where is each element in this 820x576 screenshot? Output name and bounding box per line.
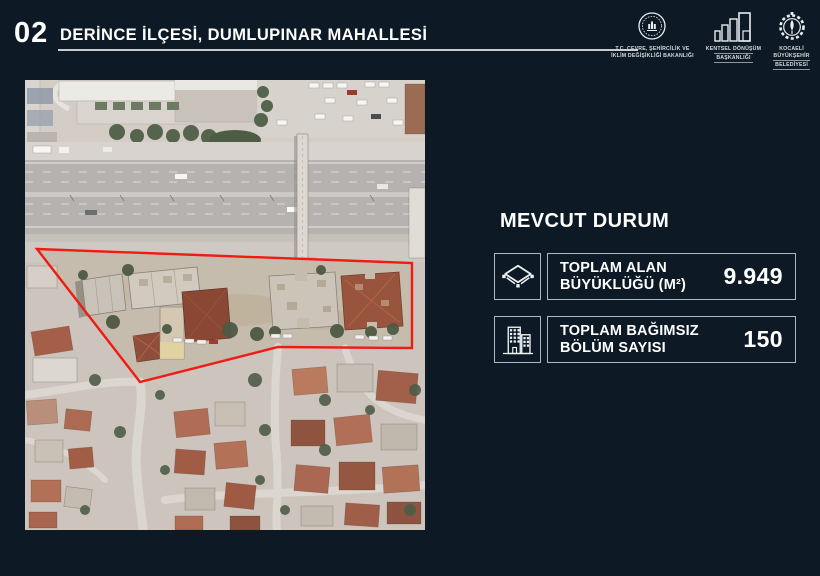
urban-transformation-buildings-icon xyxy=(713,11,753,43)
urban-transformation-caption-line: KENTSEL DÖNÜŞÜM xyxy=(706,46,761,53)
ministry-logo: T.C. ÇEVRE, ŞEHİRCİLİK VE İKLİM DEĞİŞİKL… xyxy=(611,11,694,60)
panel-heading: MEVCUT DURUM xyxy=(500,210,669,233)
urban-transformation-caption-line: BAŞKANLIĞI xyxy=(714,53,752,63)
buildings-icon xyxy=(500,322,536,358)
stat-label-line: BÖLÜM SAYISI xyxy=(560,340,699,357)
stat-textbox: TOPLAM BAĞIMSIZ BÖLÜM SAYISI 150 xyxy=(547,316,796,363)
stat-label-line: BÜYÜKLÜĞÜ (M²) xyxy=(560,277,686,294)
page-title: DERİNCE İLÇESİ, DUMLUPINAR MAHALLESİ xyxy=(60,26,427,45)
stat-label: TOPLAM ALAN BÜYÜKLÜĞÜ (M²) xyxy=(560,260,686,293)
stat-value: 9.949 xyxy=(723,263,783,290)
slide-number: 02 xyxy=(14,17,48,50)
municipality-caption-line: KOCAELİ xyxy=(773,46,810,53)
stat-value: 150 xyxy=(743,326,783,353)
stat-label-line: TOPLAM BAĞIMSIZ xyxy=(560,323,699,340)
ministry-seal-icon xyxy=(636,11,668,43)
ministry-caption-line: İKLİM DEĞİŞİKLİĞİ BAKANLIĞI xyxy=(611,53,694,60)
slide: 02 DERİNCE İLÇESİ, DUMLUPINAR MAHALLESİ … xyxy=(0,0,820,576)
area-icon xyxy=(500,259,536,295)
stat-label: TOPLAM BAĞIMSIZ BÖLÜM SAYISI xyxy=(560,323,699,356)
buildings-iconbox xyxy=(494,316,541,363)
municipality-caption-line: BELEDİYESİ xyxy=(773,60,810,70)
stat-cards: TOPLAM ALAN BÜYÜKLÜĞÜ (M²) 9.949 xyxy=(494,253,796,363)
stat-card-total-units: TOPLAM BAĞIMSIZ BÖLÜM SAYISI 150 xyxy=(494,316,796,363)
municipality-gear-icon xyxy=(776,11,808,43)
stat-label-line: TOPLAM ALAN xyxy=(560,260,686,277)
title-underline xyxy=(58,49,638,51)
urban-transformation-logo: KENTSEL DÖNÜŞÜM BAŞKANLIĞI xyxy=(706,11,761,63)
area-iconbox xyxy=(494,253,541,300)
municipality-caption-line: BÜYÜKŞEHİR xyxy=(773,53,810,60)
stat-textbox: TOPLAM ALAN BÜYÜKLÜĞÜ (M²) 9.949 xyxy=(547,253,796,300)
stat-card-total-area: TOPLAM ALAN BÜYÜKLÜĞÜ (M²) 9.949 xyxy=(494,253,796,300)
municipality-logo: KOCAELİ BÜYÜKŞEHİR BELEDİYESİ xyxy=(773,11,810,70)
aerial-map-graphic xyxy=(25,80,425,530)
ministry-caption-line: T.C. ÇEVRE, ŞEHİRCİLİK VE xyxy=(611,46,694,53)
aerial-map-image xyxy=(25,80,425,530)
header-logos: T.C. ÇEVRE, ŞEHİRCİLİK VE İKLİM DEĞİŞİKL… xyxy=(611,11,810,70)
